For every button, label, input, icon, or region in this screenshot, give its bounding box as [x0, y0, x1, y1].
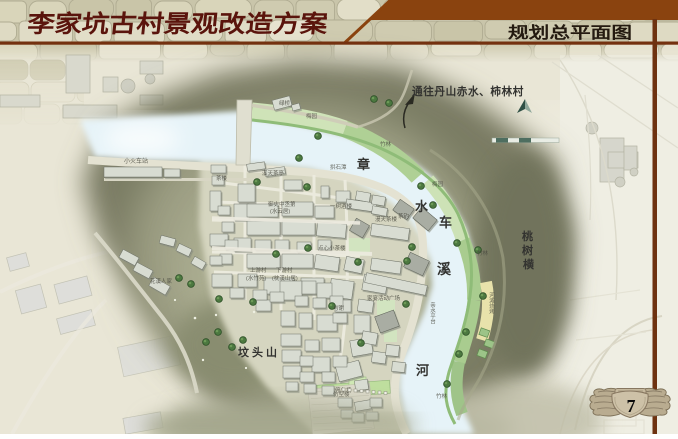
svg-text:竹林: 竹林: [380, 140, 392, 148]
svg-text:水: 水: [415, 199, 429, 214]
svg-text:李家坑古村景观改造方案: 李家坑古村景观改造方案: [26, 10, 330, 38]
svg-text:绿桥: 绿桥: [279, 99, 291, 107]
svg-text:梅园: 梅园: [432, 180, 444, 188]
svg-text:亲水平台: 亲水平台: [429, 301, 436, 326]
svg-text:上游村: 上游村: [250, 266, 267, 274]
svg-text:御史中丞第: 御史中丞第: [268, 200, 296, 208]
svg-text:拱石潭: 拱石潭: [330, 163, 347, 171]
svg-text:与谢: 与谢: [333, 304, 345, 312]
svg-text:点心小茶楼: 点心小茶楼: [318, 244, 346, 252]
svg-text:横: 横: [523, 257, 535, 271]
svg-text:茶楼: 茶楼: [216, 174, 228, 182]
svg-text:溪: 溪: [437, 261, 452, 278]
svg-text:(水云居): (水云居): [270, 207, 290, 215]
svg-text:河滩烧烤: 河滩烧烤: [488, 291, 495, 316]
svg-text:河: 河: [416, 363, 429, 378]
svg-text:梅园: 梅园: [306, 112, 318, 120]
svg-text:规划总平面图: 规划总平面图: [508, 23, 632, 42]
svg-text:下游村: 下游村: [276, 266, 293, 274]
svg-text:桃: 桃: [522, 229, 533, 243]
svg-text:小火车站: 小火车站: [124, 157, 148, 165]
svg-text:车: 车: [439, 215, 452, 230]
svg-text:竹林: 竹林: [436, 392, 448, 400]
svg-text:花溪人家: 花溪人家: [150, 277, 173, 285]
svg-text:通往丹山赤水、柿林村: 通往丹山赤水、柿林村: [412, 85, 524, 98]
svg-text:树: 树: [522, 243, 533, 257]
svg-text:竹林: 竹林: [477, 249, 489, 257]
svg-text:章: 章: [357, 157, 370, 172]
svg-text:7: 7: [627, 396, 636, 416]
svg-text:(水竹苑): (水竹苑): [246, 274, 266, 282]
svg-text:坟头山: 坟头山: [238, 345, 280, 359]
svg-text:一树酒楼: 一树酒楼: [330, 202, 353, 210]
svg-text:茶钓: 茶钓: [398, 212, 410, 220]
svg-text:漫天茶楼: 漫天茶楼: [375, 215, 398, 223]
svg-text:溪天茶亭: 溪天茶亭: [262, 169, 285, 177]
svg-text:(枕溪山居): (枕溪山居): [272, 274, 298, 282]
svg-text:家宴活动广场: 家宴活动广场: [367, 294, 401, 302]
